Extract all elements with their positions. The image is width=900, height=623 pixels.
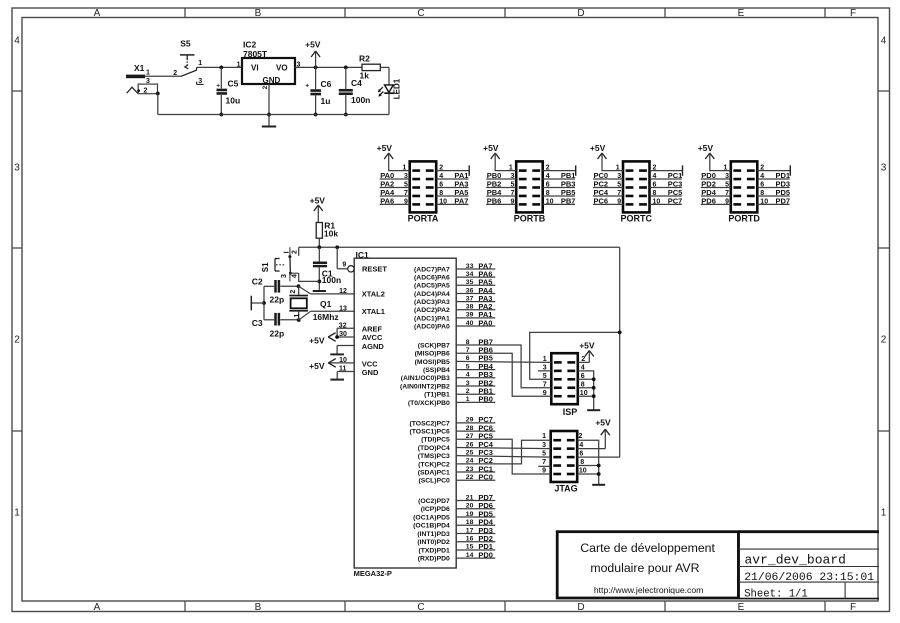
svg-text:C5: C5 [228, 78, 239, 88]
svg-text:(AIN1/OC0)PB3: (AIN1/OC0)PB3 [401, 375, 450, 382]
svg-text:C: C [417, 8, 424, 19]
svg-text:39: 39 [466, 312, 474, 319]
svg-text:7: 7 [404, 190, 408, 197]
svg-text:5: 5 [725, 182, 729, 189]
svg-text:9: 9 [542, 467, 546, 474]
svg-text:A: A [94, 602, 101, 613]
svg-text:40: 40 [466, 320, 474, 327]
svg-text:(AIN0/INT2)PB2: (AIN0/INT2)PB2 [400, 383, 450, 390]
svg-text:C2: C2 [252, 276, 263, 286]
svg-text:1: 1 [146, 69, 150, 76]
svg-text:4: 4 [760, 173, 764, 180]
svg-text:9: 9 [617, 198, 621, 205]
svg-text:(SS)PB4: (SS)PB4 [423, 367, 450, 374]
svg-text:PB7: PB7 [561, 196, 576, 205]
svg-text:(OC1A)PD5: (OC1A)PD5 [413, 514, 450, 521]
svg-text:8: 8 [760, 190, 764, 197]
svg-text:(ICP)PD6: (ICP)PD6 [421, 506, 450, 513]
svg-text:3: 3 [281, 274, 288, 278]
svg-text:6: 6 [439, 182, 443, 189]
svg-text:(TCK)PC2: (TCK)PC2 [418, 461, 450, 468]
svg-text:30: 30 [339, 331, 347, 338]
svg-text:(ADC0)PA0: (ADC0)PA0 [414, 323, 450, 330]
svg-text:10: 10 [579, 467, 587, 474]
svg-text:13: 13 [339, 306, 347, 313]
svg-text:PORTC: PORTC [621, 214, 653, 224]
svg-text:4: 4 [653, 173, 657, 180]
svg-text:2: 2 [290, 290, 297, 294]
svg-text:28: 28 [466, 425, 474, 432]
svg-text:modulaire pour AVR: modulaire pour AVR [590, 561, 699, 575]
svg-text:+5V: +5V [305, 40, 321, 50]
svg-text:3: 3 [542, 442, 546, 449]
svg-text:+5V: +5V [310, 195, 326, 205]
svg-text:18: 18 [466, 519, 474, 526]
svg-text:36: 36 [466, 287, 474, 294]
svg-text:S1: S1 [261, 262, 270, 272]
svg-text:3: 3 [881, 162, 887, 173]
svg-text:2: 2 [173, 70, 177, 77]
svg-text:Q1: Q1 [320, 299, 332, 309]
svg-text:4: 4 [14, 35, 20, 46]
svg-text:A: A [94, 8, 101, 19]
svg-text:Carte de développement: Carte de développement [580, 541, 715, 555]
svg-text:(ADC5)PA5: (ADC5)PA5 [414, 283, 450, 290]
svg-text:+: + [305, 83, 309, 90]
svg-text:PD6: PD6 [701, 196, 716, 205]
svg-text:(ADC7)PA7: (ADC7)PA7 [414, 266, 450, 273]
svg-text:(SCL)PC0: (SCL)PC0 [418, 478, 450, 485]
svg-text:(ADC2)PA2: (ADC2)PA2 [414, 307, 450, 314]
svg-text:(TDO)PC4: (TDO)PC4 [418, 445, 450, 452]
svg-text:C6: C6 [321, 79, 332, 89]
svg-text:1: 1 [723, 164, 727, 171]
svg-text:5: 5 [617, 182, 621, 189]
svg-text:AGND: AGND [362, 342, 385, 351]
svg-text:ISP: ISP [563, 407, 578, 417]
svg-text:35: 35 [466, 279, 474, 286]
svg-text:F: F [850, 602, 856, 613]
svg-text:LED1: LED1 [393, 78, 402, 99]
svg-text:4: 4 [292, 274, 299, 278]
svg-text:VO: VO [276, 63, 288, 72]
svg-text:2: 2 [546, 164, 550, 171]
svg-text:GND: GND [362, 368, 379, 377]
svg-text:7: 7 [617, 190, 621, 197]
svg-text:10: 10 [339, 357, 347, 364]
svg-text:1: 1 [14, 507, 20, 518]
svg-text:8: 8 [546, 190, 550, 197]
svg-text:+5V: +5V [309, 335, 325, 345]
svg-text:(INT0)PD2: (INT0)PD2 [417, 539, 450, 546]
svg-text:(ADC3)PA3: (ADC3)PA3 [414, 299, 450, 306]
svg-text:2: 2 [144, 87, 148, 94]
svg-text:(TOSC2)PC7: (TOSC2)PC7 [410, 420, 451, 427]
svg-text:11: 11 [339, 366, 347, 373]
svg-text:2: 2 [653, 164, 657, 171]
svg-text:X1: X1 [134, 63, 145, 73]
svg-text:9: 9 [725, 198, 729, 205]
svg-text:29: 29 [466, 417, 474, 424]
svg-text:(T1)PB1: (T1)PB1 [424, 392, 450, 399]
svg-text:+5V: +5V [590, 143, 606, 153]
svg-text:4: 4 [579, 442, 583, 449]
svg-text:10: 10 [760, 198, 768, 205]
svg-text:(TOSC1)PC6: (TOSC1)PC6 [410, 428, 451, 435]
svg-text:3: 3 [617, 173, 621, 180]
svg-text:2: 2 [466, 388, 470, 395]
svg-text:4: 4 [881, 35, 887, 46]
svg-text:(ADC4)PA4: (ADC4)PA4 [414, 291, 450, 298]
svg-text:VI: VI [251, 63, 259, 72]
svg-text:5: 5 [466, 363, 470, 370]
svg-text:+5V: +5V [595, 417, 611, 427]
svg-text:B: B [255, 8, 262, 19]
svg-text:+5V: +5V [377, 143, 393, 153]
svg-text:34: 34 [466, 271, 474, 278]
svg-text:5: 5 [404, 182, 408, 189]
svg-text:37: 37 [466, 295, 474, 302]
svg-text:PC7: PC7 [668, 196, 683, 205]
svg-text:12: 12 [339, 288, 347, 295]
svg-text:8: 8 [580, 459, 584, 466]
svg-text:7: 7 [510, 190, 514, 197]
svg-text:33: 33 [466, 263, 474, 270]
svg-text:19: 19 [466, 511, 474, 518]
svg-text:1: 1 [616, 164, 620, 171]
svg-text:4: 4 [439, 173, 443, 180]
svg-text:1u: 1u [321, 96, 331, 106]
svg-text:1: 1 [294, 314, 301, 318]
svg-text:(TDI)PC5: (TDI)PC5 [421, 437, 450, 444]
svg-text:7: 7 [725, 190, 729, 197]
svg-text:10u: 10u [226, 95, 241, 105]
svg-text:3: 3 [725, 173, 729, 180]
svg-text:C: C [417, 602, 424, 613]
svg-text:9: 9 [342, 262, 346, 269]
svg-text:(OC2)PD7: (OC2)PD7 [418, 498, 450, 505]
svg-text:PORTA: PORTA [408, 214, 439, 224]
svg-text:IC2: IC2 [243, 40, 257, 50]
svg-text:9: 9 [510, 198, 514, 205]
svg-text:10: 10 [439, 198, 447, 205]
svg-text:15: 15 [466, 544, 474, 551]
svg-text:1: 1 [881, 507, 887, 518]
svg-text:XTAL2: XTAL2 [362, 290, 385, 299]
svg-text:2: 2 [262, 85, 269, 89]
svg-text:21/06/2006 23:15:01: 21/06/2006 23:15:01 [744, 572, 874, 584]
svg-text:+5V: +5V [483, 143, 499, 153]
svg-text:PB6: PB6 [487, 196, 502, 205]
svg-text:6: 6 [653, 182, 657, 189]
svg-text:D: D [577, 602, 584, 613]
svg-text:PORTD: PORTD [728, 214, 760, 224]
svg-text:PA7: PA7 [454, 196, 468, 205]
svg-text:(OC1B)PD4: (OC1B)PD4 [413, 523, 450, 530]
svg-text:8: 8 [653, 190, 657, 197]
svg-text:2: 2 [579, 433, 583, 440]
svg-text:S5: S5 [180, 39, 191, 49]
svg-text:5: 5 [542, 450, 546, 457]
svg-text:avr_dev_board: avr_dev_board [745, 552, 846, 567]
svg-text:6: 6 [546, 182, 550, 189]
svg-text:23: 23 [466, 466, 474, 473]
svg-text:6: 6 [760, 182, 764, 189]
svg-text:GND: GND [263, 76, 281, 85]
svg-text:JTAG: JTAG [554, 483, 577, 493]
svg-text:(INT1)PD3: (INT1)PD3 [417, 531, 450, 538]
svg-text:1: 1 [402, 164, 406, 171]
svg-text:3: 3 [510, 173, 514, 180]
svg-text:C3: C3 [252, 318, 263, 328]
svg-text:AVCC: AVCC [362, 333, 383, 342]
svg-text:PC0: PC0 [478, 473, 493, 482]
svg-text:3: 3 [14, 162, 20, 173]
svg-text:PORTB: PORTB [514, 214, 546, 224]
svg-text:(SDA)PC1: (SDA)PC1 [418, 469, 450, 476]
svg-text:E: E [738, 602, 745, 613]
svg-text:1: 1 [237, 61, 241, 68]
svg-text:5: 5 [510, 182, 514, 189]
svg-text:38: 38 [466, 304, 474, 311]
svg-text:PD0: PD0 [478, 550, 493, 559]
svg-text:4: 4 [466, 372, 470, 379]
svg-text:3: 3 [198, 78, 202, 85]
svg-text:6: 6 [579, 450, 583, 457]
svg-text:1k: 1k [360, 70, 370, 80]
svg-text:R2: R2 [359, 53, 370, 63]
svg-text:3: 3 [404, 173, 408, 180]
svg-text:F: F [850, 8, 856, 19]
svg-text:20: 20 [466, 503, 474, 510]
svg-text:(MOSI)PB5: (MOSI)PB5 [415, 359, 450, 366]
svg-text:4: 4 [546, 173, 550, 180]
svg-text:2: 2 [881, 334, 887, 345]
svg-text:(TMS)PC3: (TMS)PC3 [418, 453, 450, 460]
svg-text:14: 14 [466, 552, 474, 559]
svg-text:PB0: PB0 [478, 395, 493, 404]
svg-text:1: 1 [198, 60, 202, 67]
svg-text:+5V: +5V [579, 340, 595, 350]
svg-text:100n: 100n [351, 95, 370, 105]
svg-text:17: 17 [466, 527, 474, 534]
svg-text:PA6: PA6 [380, 196, 394, 205]
svg-text:(ADC6)PA6: (ADC6)PA6 [414, 275, 450, 282]
svg-text:9: 9 [404, 198, 408, 205]
svg-text:2: 2 [760, 164, 764, 171]
svg-text:10: 10 [546, 198, 554, 205]
svg-text:16: 16 [466, 536, 474, 543]
svg-text:(TXD)PD1: (TXD)PD1 [418, 547, 450, 554]
svg-text:B: B [255, 602, 262, 613]
svg-text:PC6: PC6 [594, 196, 609, 205]
svg-text:+5V: +5V [309, 361, 325, 371]
svg-text:1: 1 [466, 396, 470, 403]
svg-text:22p: 22p [270, 328, 285, 338]
svg-text:E: E [738, 8, 745, 19]
svg-text:10k: 10k [324, 229, 338, 239]
svg-text:21: 21 [466, 494, 474, 501]
svg-text:2: 2 [292, 250, 299, 254]
svg-text:RESET: RESET [362, 265, 387, 274]
svg-text:22p: 22p [270, 295, 285, 305]
svg-text:PD7: PD7 [776, 196, 791, 205]
svg-text:(RXD)PD0: (RXD)PD0 [418, 556, 450, 563]
svg-text:+5V: +5V [698, 143, 714, 153]
svg-text:3: 3 [466, 380, 470, 387]
svg-text:8: 8 [439, 190, 443, 197]
svg-text:+: + [216, 83, 220, 90]
svg-text:XTAL1: XTAL1 [362, 307, 385, 316]
svg-text:2: 2 [439, 164, 443, 171]
svg-text:22: 22 [466, 474, 474, 481]
svg-text:(SCK)PB7: (SCK)PB7 [418, 342, 450, 349]
svg-text:10: 10 [653, 198, 661, 205]
svg-text:MEGA32-P: MEGA32-P [354, 569, 392, 578]
svg-text:PA0: PA0 [478, 318, 492, 327]
svg-text:7: 7 [542, 459, 546, 466]
svg-text:32: 32 [339, 323, 347, 330]
svg-text:(T0/XCK)PB0: (T0/XCK)PB0 [408, 400, 450, 407]
svg-text:1: 1 [542, 433, 546, 440]
svg-text:D: D [577, 8, 584, 19]
svg-text:(MISO)PB6: (MISO)PB6 [415, 351, 450, 358]
svg-text:http://www.jelectronique.com: http://www.jelectronique.com [594, 585, 703, 595]
svg-text:1: 1 [509, 164, 513, 171]
svg-text:2: 2 [14, 334, 20, 345]
svg-text:100n: 100n [322, 275, 341, 285]
svg-text:(ADC1)PA1: (ADC1)PA1 [414, 315, 450, 322]
svg-text:Sheet: 1/1: Sheet: 1/1 [744, 588, 808, 600]
svg-text:16Mhz: 16Mhz [313, 312, 339, 322]
